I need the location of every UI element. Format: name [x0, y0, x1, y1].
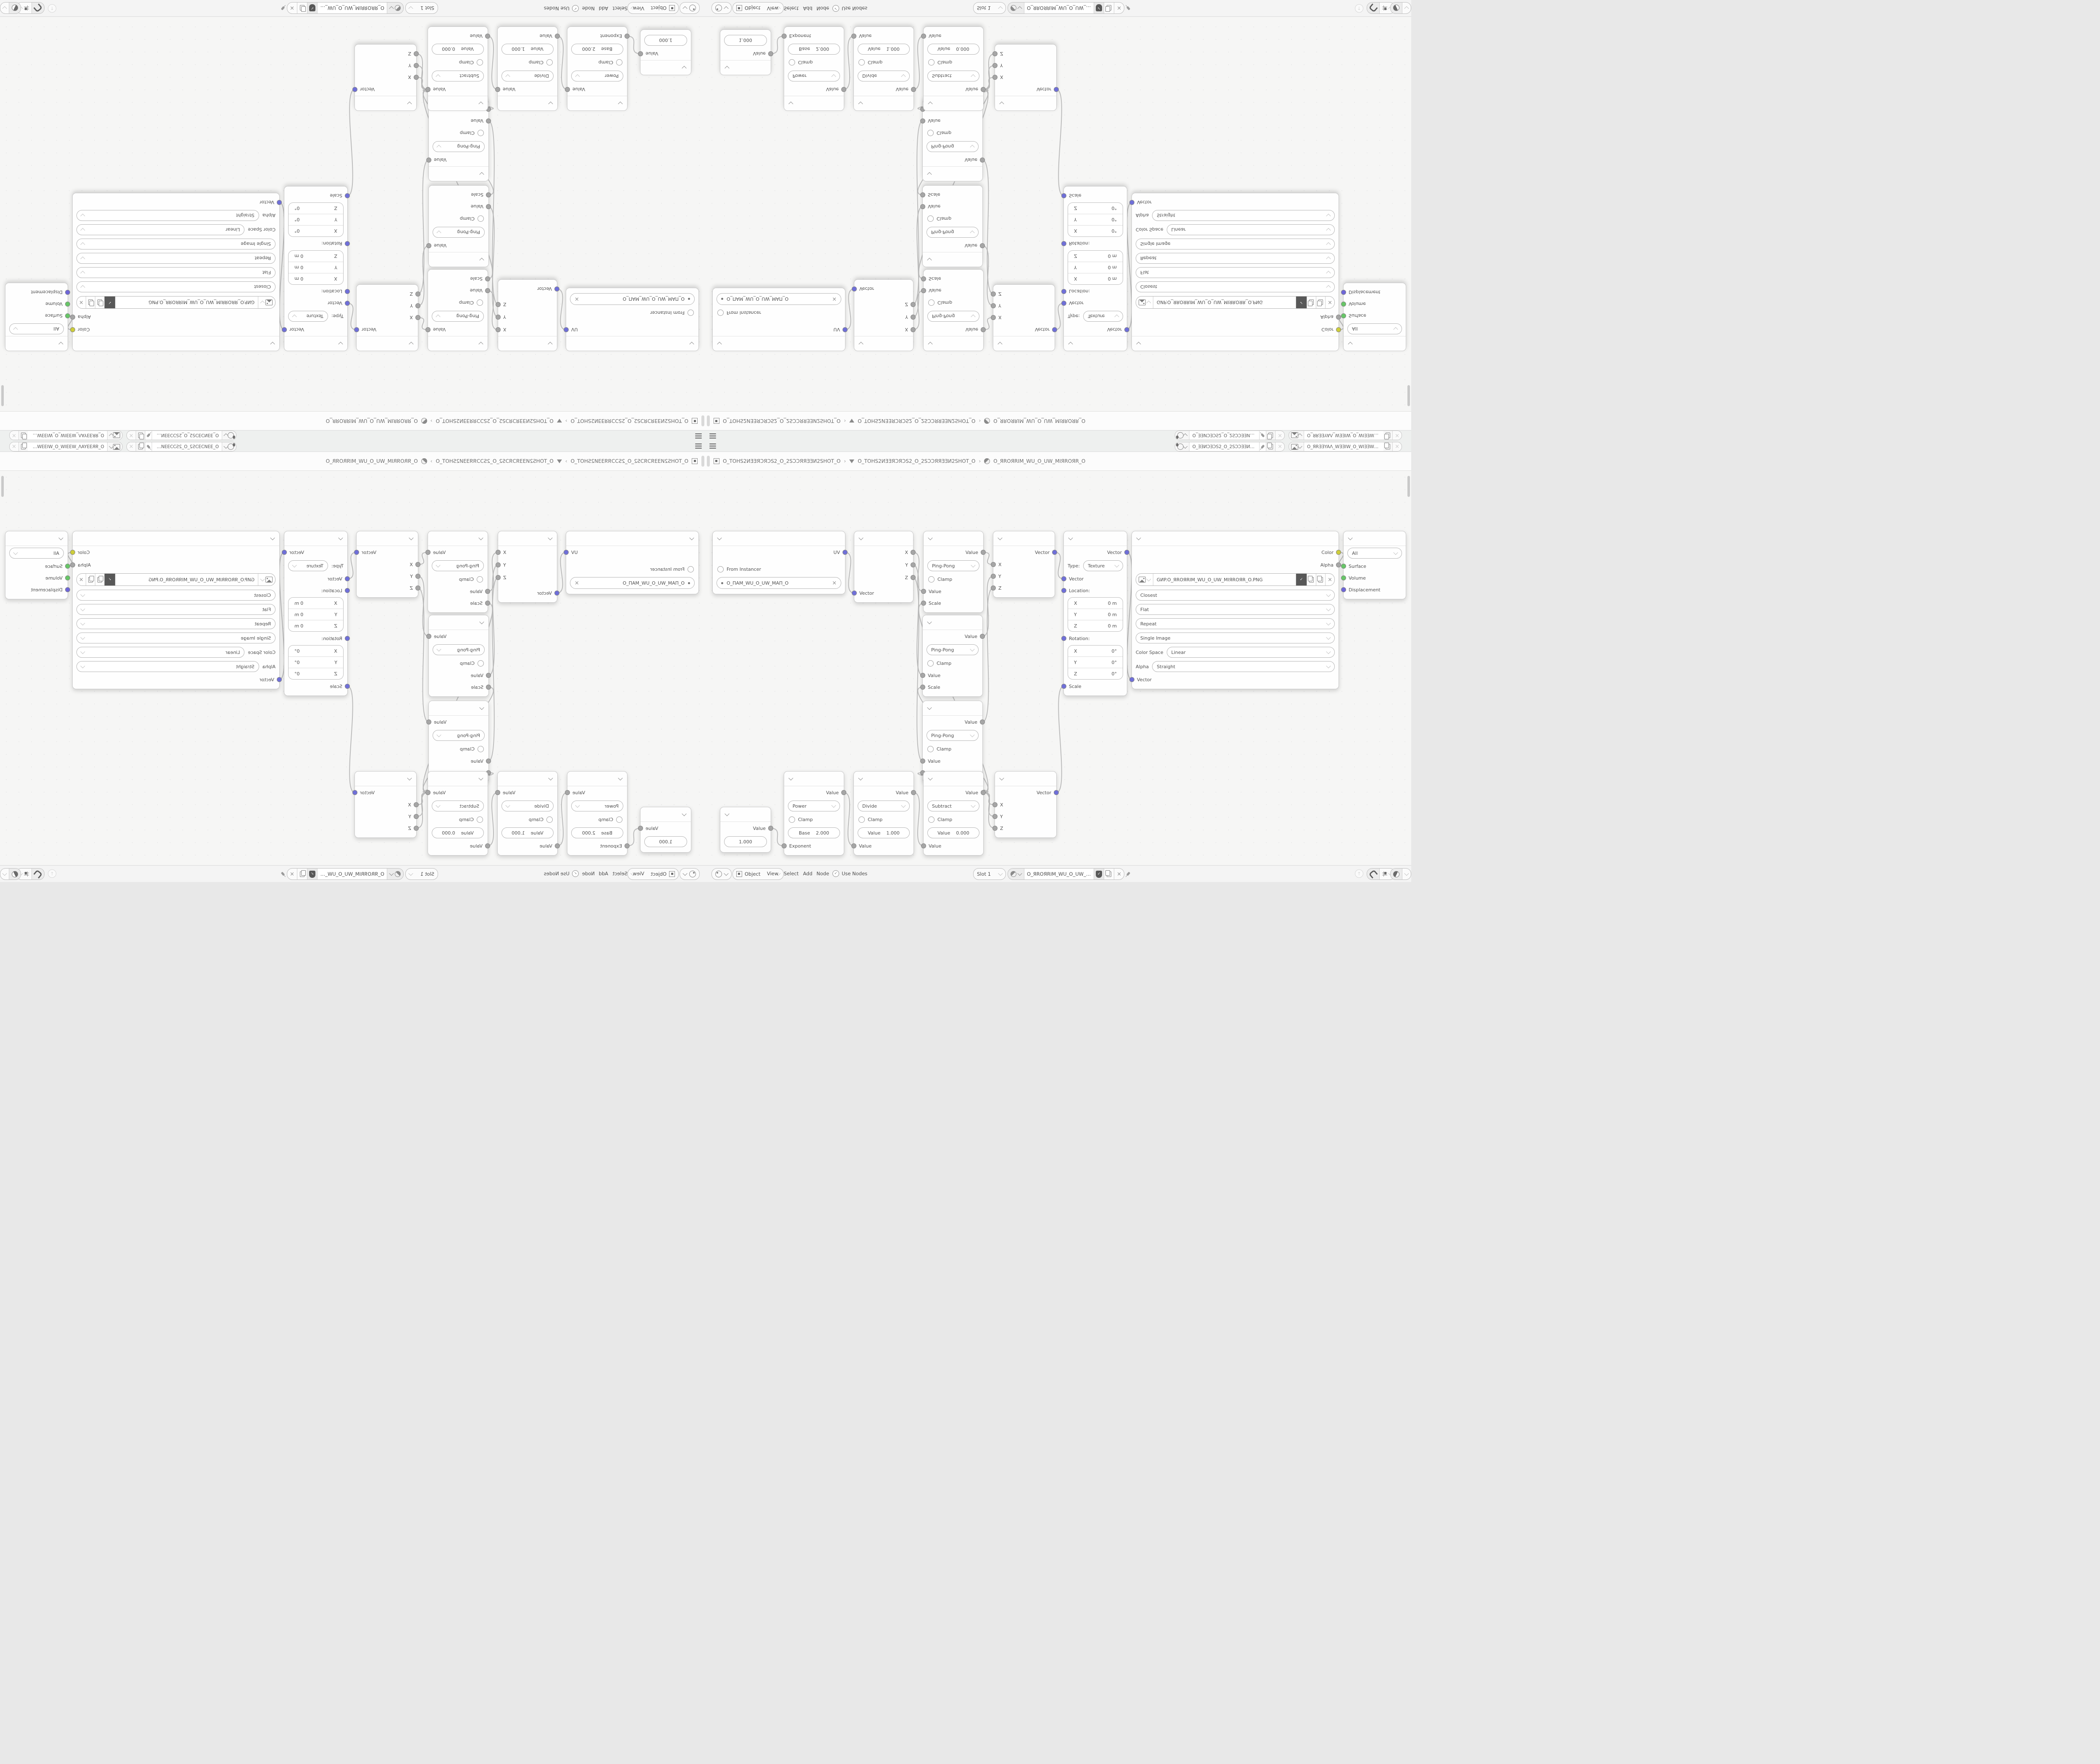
close-icon[interactable]: × — [1276, 431, 1284, 440]
z-socket[interactable] — [991, 585, 996, 591]
single-image-dropdown[interactable]: Single Image — [1136, 239, 1335, 249]
node-header[interactable] — [567, 96, 627, 110]
scale-socket[interactable] — [345, 684, 350, 689]
value-socket[interactable] — [426, 243, 431, 248]
material-sphere-icon[interactable] — [1008, 869, 1024, 879]
uv-map-selector[interactable]: O_ПAM_WU_O_UW_MAП_O× — [717, 577, 841, 589]
clamp-checkbox[interactable] — [477, 816, 483, 823]
close-icon[interactable]: × — [10, 442, 18, 451]
clamp-checkbox[interactable] — [477, 300, 483, 306]
value-socket[interactable] — [426, 719, 431, 724]
flat-dropdown[interactable]: Flat — [76, 604, 276, 615]
node-header[interactable] — [429, 615, 488, 630]
node-header[interactable] — [854, 96, 913, 110]
x-socket[interactable] — [496, 327, 501, 332]
collapse-chevron-icon[interactable] — [270, 342, 275, 346]
scale-socket[interactable] — [486, 685, 491, 690]
math-power-node[interactable]: ValuePowerClampBase2.000Exponent — [567, 26, 627, 111]
image-datablock-selector[interactable]: GИP.O_ЯROЯRIM_WU_O_UW_MIЯROЯR_O.PNG✓× — [76, 573, 276, 586]
math-pingpong-3-node[interactable]: ValuePing-PongClampValueScale — [922, 701, 983, 782]
value-socket[interactable] — [425, 87, 430, 92]
copy-icon[interactable] — [1383, 442, 1393, 451]
breadcrumb-data[interactable]: O_TOHS2ИƎƎЯƆЯƆS2_O_2SƆƆЯЯƎƎИ2SHOT_O — [858, 418, 975, 424]
area-corner-handle[interactable] — [707, 456, 710, 467]
x-socket[interactable] — [911, 327, 916, 332]
y-socket[interactable] — [496, 562, 501, 567]
clamp-checkbox[interactable] — [858, 60, 865, 66]
y-socket[interactable] — [496, 315, 501, 320]
image-icon[interactable] — [258, 297, 275, 308]
image-icon[interactable] — [258, 574, 275, 585]
collapse-chevron-icon[interactable] — [409, 535, 413, 540]
subtract-dropdown[interactable]: Subtract — [927, 801, 979, 811]
ping-pong-dropdown[interactable]: Ping-Pong — [433, 644, 485, 655]
menu-select[interactable]: Select — [613, 868, 627, 879]
collapse-chevron-icon[interactable] — [1348, 535, 1352, 540]
y-socket[interactable] — [414, 814, 419, 819]
divide-dropdown[interactable]: Divide — [501, 71, 554, 81]
scrollbar[interactable] — [1, 385, 4, 406]
collapse-chevron-icon[interactable] — [927, 705, 932, 710]
uv-socket[interactable] — [843, 327, 848, 332]
power-dropdown[interactable]: Power — [571, 71, 623, 81]
node-header[interactable] — [429, 252, 488, 267]
z-socket[interactable] — [414, 51, 419, 56]
viewer-datablock-selector[interactable]: O_ЯRƎƎYAΛ_WƎƎIW_O_WIƎƎW_ΛAYƎƎRЯ_O × — [9, 442, 123, 451]
flat-dropdown[interactable]: Flat — [1136, 604, 1335, 615]
x-socket[interactable] — [496, 550, 501, 555]
node-header[interactable] — [995, 772, 1056, 786]
node-header[interactable] — [498, 96, 557, 110]
value-field[interactable]: Value0.000 — [927, 827, 979, 838]
value-socket[interactable] — [638, 826, 643, 831]
axis-field[interactable]: Y0 m — [1068, 609, 1123, 620]
location--socket[interactable] — [345, 588, 350, 593]
value-node[interactable]: Value1.000 — [640, 807, 691, 853]
value-socket[interactable] — [920, 204, 925, 209]
value-socket[interactable] — [486, 673, 491, 678]
collapse-chevron-icon[interactable] — [999, 776, 1004, 780]
value-socket[interactable] — [841, 790, 846, 795]
uv-map-node[interactable]: UVFrom InstancerO_ПAM_WU_O_UW_MAП_O× — [566, 288, 699, 351]
collapse-chevron-icon[interactable] — [1068, 342, 1073, 346]
value-socket[interactable] — [485, 288, 490, 293]
node-header[interactable] — [784, 96, 844, 110]
unpack-icon[interactable] — [1316, 574, 1325, 585]
breadcrumb-material[interactable]: O_ЯROЯRIM_WU_O_UW_MIЯROЯR_O — [326, 418, 418, 424]
value-socket[interactable] — [920, 118, 925, 123]
collapse-chevron-icon[interactable] — [858, 102, 863, 106]
copy-icon[interactable] — [18, 442, 28, 451]
axis-field[interactable]: Y0 m — [289, 609, 343, 620]
subtract-dropdown[interactable]: Subtract — [432, 801, 484, 811]
axis-field[interactable]: X0 m — [1068, 273, 1123, 284]
x-socket[interactable] — [991, 562, 996, 567]
x-socket[interactable] — [991, 315, 996, 320]
breadcrumb-material[interactable]: O_ЯROЯRIM_WU_O_UW_MIЯROЯR_O — [326, 458, 418, 464]
divide-dropdown[interactable]: Divide — [501, 801, 554, 811]
location--socket[interactable] — [1061, 588, 1066, 593]
node-editor-canvas[interactable]: UVFrom InstancerO_ПAM_WU_O_UW_MAП_O×XYZV… — [706, 16, 1411, 411]
node-header[interactable] — [640, 807, 691, 822]
image-icon[interactable] — [1136, 574, 1153, 585]
node-header[interactable] — [713, 336, 845, 351]
copy-icon[interactable] — [1307, 297, 1316, 308]
mapping-node[interactable]: VectorType:TextureVectorLocation:X0 mY0 … — [1063, 186, 1127, 351]
scene-icon[interactable] — [222, 431, 236, 440]
node-header[interactable] — [355, 772, 416, 786]
close-icon[interactable]: × — [575, 580, 579, 586]
separate-xyz-node[interactable]: XYZVector — [498, 531, 557, 603]
color-socket[interactable] — [1336, 550, 1341, 555]
collapse-chevron-icon[interactable] — [270, 535, 275, 540]
linear-dropdown[interactable]: Linear — [76, 224, 244, 235]
math-subtract-node[interactable]: ValueSubtractClampValue0.000Value — [923, 771, 984, 856]
value-socket[interactable] — [555, 34, 560, 39]
math-subtract-node[interactable]: ValueSubtractClampValue0.000Value — [428, 771, 488, 856]
fake-user-shield-icon[interactable]: ✓ — [105, 574, 115, 585]
axis-field[interactable]: Z0 m — [289, 251, 343, 262]
collapse-chevron-icon[interactable] — [548, 342, 552, 346]
use-nodes-toggle[interactable]: ✓ Use Nodes — [544, 3, 579, 14]
node-header[interactable] — [498, 772, 557, 786]
value-socket[interactable] — [486, 759, 491, 764]
breadcrumb-material[interactable]: O_ЯROЯRIM_WU_O_UW_MIЯROЯR_O — [993, 418, 1085, 424]
uv-map-node[interactable]: UVFrom InstancerO_ПAM_WU_O_UW_MAП_O× — [712, 288, 845, 351]
collapse-chevron-icon[interactable] — [618, 776, 622, 780]
material-slot-dropdown[interactable]: Slot 1 — [405, 868, 438, 880]
copy-icon[interactable] — [95, 297, 105, 308]
material-output-node[interactable]: AllSurfaceVolumeDisplacement — [5, 531, 68, 599]
collapse-chevron-icon[interactable] — [928, 102, 932, 106]
math-pingpong-1-node[interactable]: ValuePing-PongClampValueScale — [428, 531, 488, 613]
copy-icon[interactable] — [297, 3, 307, 13]
menu-add[interactable]: Add — [803, 868, 812, 879]
value-socket[interactable] — [980, 157, 985, 163]
rotation--socket[interactable] — [1061, 241, 1066, 246]
image-icon[interactable] — [1136, 297, 1153, 308]
all-dropdown[interactable]: All — [1347, 548, 1402, 559]
y-socket[interactable] — [991, 574, 996, 579]
linear-dropdown[interactable]: Linear — [76, 647, 244, 658]
menu-select[interactable]: Select — [784, 868, 798, 879]
ping-pong-dropdown[interactable]: Ping-Pong — [927, 644, 979, 655]
node-header[interactable] — [923, 615, 982, 630]
viewer-name[interactable]: O_ЯRƎƎYAΛ_WƎƎIW_O_WIƎƎW_ΛAYƎƎRЯ_O — [1304, 444, 1383, 449]
rotation--socket[interactable] — [345, 241, 350, 246]
scale-socket[interactable] — [485, 601, 490, 606]
image-texture-node[interactable]: ColorAlphaGИP.O_ЯROЯRIM_WU_O_UW_MIЯROЯR_… — [1131, 193, 1339, 351]
scene-name[interactable]: O_ƎƎИƆƎƆS2_O_2SƆƆƎƎИ… — [1189, 444, 1259, 449]
node-header[interactable] — [784, 772, 844, 786]
math-pingpong-1-node[interactable]: ValuePing-PongClampValueScale — [923, 531, 984, 613]
value-socket[interactable] — [921, 288, 926, 293]
axis-field[interactable]: Y0 m — [289, 262, 343, 273]
ping-pong-dropdown[interactable]: Ping-Pong — [433, 227, 485, 238]
combine-xyz-top-node[interactable]: VectorXYZ — [993, 531, 1055, 598]
area-corner-handle[interactable] — [701, 456, 704, 467]
value-field[interactable]: Value0.000 — [432, 44, 484, 55]
subtract-dropdown[interactable]: Subtract — [927, 71, 979, 81]
math-pingpong-2-node[interactable]: ValuePing-PongClampValueScale — [922, 185, 983, 267]
close-icon[interactable]: × — [77, 297, 86, 308]
z-socket[interactable] — [415, 585, 420, 591]
close-icon[interactable]: × — [1325, 297, 1334, 308]
copy-icon[interactable] — [1383, 431, 1393, 440]
volume-socket[interactable] — [65, 302, 70, 307]
node-header[interactable] — [995, 96, 1056, 110]
axis-field[interactable]: Y0° — [1068, 214, 1123, 226]
z-socket[interactable] — [911, 302, 916, 307]
repeat-dropdown[interactable]: Repeat — [76, 618, 276, 629]
value-socket[interactable] — [921, 34, 926, 39]
falloff-controls[interactable] — [1390, 2, 1411, 14]
value-field[interactable]: 1.000 — [724, 35, 767, 46]
from-instancer-checkbox[interactable] — [717, 566, 724, 572]
editor-type-button[interactable] — [711, 2, 732, 14]
node-header[interactable] — [355, 96, 416, 110]
value-socket[interactable] — [920, 673, 925, 678]
clamp-checkbox[interactable] — [546, 60, 553, 66]
viewer-datablock-selector[interactable]: O_ЯRƎƎYAΛ_WƎƎIW_O_WIƎƎW_ΛAYƎƎRЯ_O × — [1289, 442, 1402, 451]
menu-node[interactable]: Node — [582, 3, 595, 14]
collapse-chevron-icon[interactable] — [997, 342, 1002, 346]
displacement-socket[interactable] — [65, 290, 70, 295]
vector-xyz-fields[interactable]: X0°Y0°Z0° — [1068, 645, 1123, 680]
vector-socket[interactable] — [277, 677, 282, 682]
image-icon[interactable] — [1289, 442, 1304, 451]
axis-field[interactable]: Z0 m — [1068, 251, 1123, 262]
scene-icon[interactable] — [1175, 431, 1189, 440]
vector-socket[interactable] — [1124, 327, 1129, 332]
vector-socket[interactable] — [282, 550, 287, 555]
node-header[interactable] — [428, 772, 488, 786]
image-datablock-selector[interactable]: GИP.O_ЯROЯRIM_WU_O_UW_MIЯROЯR_O.PNG✓× — [1136, 296, 1335, 309]
node-header[interactable] — [429, 166, 488, 181]
surface-socket[interactable] — [65, 313, 70, 318]
combine-xyz-bottom-node[interactable]: VectorXYZ — [995, 44, 1057, 111]
node-header[interactable] — [5, 336, 68, 351]
material-slot-dropdown[interactable]: Slot 1 — [973, 868, 1006, 880]
mapping-node[interactable]: VectorType:TextureVectorLocation:X0 mY0 … — [1063, 531, 1127, 696]
scrollbar[interactable] — [1407, 476, 1410, 497]
divide-dropdown[interactable]: Divide — [858, 71, 910, 81]
from-instancer-checkbox[interactable] — [717, 310, 724, 316]
copy-icon[interactable] — [1266, 431, 1276, 440]
value-socket[interactable] — [980, 719, 985, 724]
exponent-socket[interactable] — [625, 843, 630, 848]
texture-dropdown[interactable]: Texture — [1083, 311, 1123, 322]
fake-user-shield-icon[interactable]: ✓ — [307, 869, 318, 879]
value-socket[interactable] — [851, 34, 856, 39]
node-header[interactable] — [5, 531, 68, 546]
ping-pong-dropdown[interactable]: Ping-Pong — [432, 311, 484, 322]
value-socket[interactable] — [425, 327, 430, 332]
value-socket[interactable] — [981, 790, 986, 795]
x-socket[interactable] — [414, 75, 419, 80]
separate-xyz-node[interactable]: XYZVector — [854, 531, 913, 603]
breadcrumb-data[interactable]: O_TOHS2ИƎƎЯƆЯƆS2_O_2SƆƆЯЯƎƎИ2SHOT_O — [858, 458, 975, 464]
value-socket[interactable] — [981, 87, 986, 92]
math-pingpong-3-node[interactable]: ValuePing-PongClampValueScale — [428, 100, 489, 181]
collapse-chevron-icon[interactable] — [999, 102, 1004, 106]
vector-xyz-fields[interactable]: X0 mY0 mZ0 m — [288, 597, 344, 632]
vector-xyz-fields[interactable]: X0°Y0°Z0° — [288, 645, 344, 680]
x-socket[interactable] — [911, 550, 916, 555]
node-header[interactable] — [713, 531, 845, 546]
value-field[interactable]: 1.000 — [644, 836, 687, 847]
up-arrow-button[interactable]: ↑ — [1355, 868, 1363, 879]
node-header[interactable] — [498, 336, 557, 351]
combine-xyz-top-node[interactable]: VectorXYZ — [356, 531, 418, 598]
texture-dropdown[interactable]: Texture — [288, 311, 328, 322]
material-output-node[interactable]: AllSurfaceVolumeDisplacement — [1343, 283, 1406, 351]
axis-field[interactable]: Z0 m — [1068, 620, 1123, 631]
value-socket[interactable] — [920, 759, 925, 764]
axis-field[interactable]: Z0 m — [289, 620, 343, 631]
close-icon[interactable]: × — [10, 431, 18, 440]
value-socket[interactable] — [565, 87, 570, 92]
menu-node[interactable]: Node — [582, 868, 595, 879]
node-header[interactable] — [923, 701, 982, 716]
value-socket[interactable] — [638, 51, 643, 56]
menu-hamburger-icon[interactable] — [709, 433, 716, 438]
y-socket[interactable] — [992, 63, 997, 68]
collapse-chevron-icon[interactable] — [927, 619, 932, 624]
ping-pong-dropdown[interactable]: Ping-Pong — [927, 730, 979, 741]
material-name-field[interactable]: O_ЯROЯRIM_WU_O_UW_MIЯROЯR_O — [318, 3, 387, 13]
straight-dropdown[interactable]: Straight — [1152, 661, 1335, 672]
fake-user-shield-icon[interactable]: ✓ — [307, 3, 318, 13]
math-pingpong-2-node[interactable]: ValuePing-PongClampValueScale — [428, 185, 489, 267]
vector-socket[interactable] — [354, 550, 359, 555]
falloff-controls[interactable] — [0, 868, 21, 880]
clamp-checkbox[interactable] — [928, 60, 934, 66]
material-name-field[interactable]: O_ЯROЯRIM_WU_O_UW_MIЯROЯR_O — [1024, 3, 1094, 13]
math-subtract-node[interactable]: ValueSubtractClampValue0.000Value — [428, 26, 488, 111]
math-pingpong-1-node[interactable]: ValuePing-PongClampValueScale — [923, 269, 984, 351]
node-header[interactable] — [854, 336, 913, 351]
closest-dropdown[interactable]: Closest — [1136, 281, 1335, 292]
node-header[interactable] — [720, 807, 771, 822]
material-datablock-selector[interactable]: O_ЯROЯRIM_WU_O_UW_MIЯROЯR_O ✓ × — [287, 2, 404, 14]
value-socket[interactable] — [495, 790, 500, 795]
falloff-icon[interactable] — [9, 869, 21, 879]
value-socket[interactable] — [851, 843, 856, 848]
flat-dropdown[interactable]: Flat — [1136, 267, 1335, 278]
scene-icon[interactable] — [222, 442, 236, 451]
uv-map-selector[interactable]: O_ПAM_WU_O_UW_MAП_O× — [570, 577, 695, 589]
falloff-controls[interactable] — [0, 2, 21, 14]
scene-icon[interactable] — [1175, 442, 1189, 451]
collapse-chevron-icon[interactable] — [478, 102, 483, 106]
value-socket[interactable] — [426, 157, 431, 163]
alpha-socket[interactable] — [70, 315, 75, 320]
axis-field[interactable]: Y0° — [289, 214, 343, 226]
image-datablock-selector[interactable]: GИP.O_ЯROЯRIM_WU_O_UW_MIЯROЯR_O.PNG✓× — [76, 296, 276, 309]
node-header[interactable] — [923, 166, 982, 181]
falloff-controls[interactable] — [1390, 868, 1411, 880]
collapse-chevron-icon[interactable] — [338, 342, 343, 346]
vector-socket[interactable] — [852, 286, 857, 291]
menu-add[interactable]: Add — [599, 3, 608, 14]
close-icon[interactable]: × — [1393, 442, 1402, 451]
vector-socket[interactable] — [354, 327, 359, 332]
collapse-chevron-icon[interactable] — [407, 776, 412, 780]
pin-icon[interactable] — [1259, 431, 1266, 440]
repeat-dropdown[interactable]: Repeat — [1136, 618, 1335, 629]
value-socket[interactable] — [426, 634, 431, 639]
collapse-chevron-icon[interactable] — [858, 342, 863, 346]
scene-name[interactable]: O_ƎƎИƆƎƆS2_O_2SƆƆƎƎИ… — [152, 444, 222, 449]
node-editor-canvas[interactable]: UVFrom InstancerO_ПAM_WU_O_UW_MAП_O×XYZV… — [706, 471, 1411, 866]
vector-xyz-fields[interactable]: X0 mY0 mZ0 m — [1068, 250, 1123, 285]
repeat-dropdown[interactable]: Repeat — [76, 253, 276, 264]
mapping-node[interactable]: VectorType:TextureVectorLocation:X0 mY0 … — [284, 531, 348, 696]
value-socket[interactable] — [911, 790, 916, 795]
value-socket[interactable] — [981, 550, 986, 555]
image-icon[interactable] — [107, 431, 122, 440]
node-header[interactable] — [854, 772, 913, 786]
vector-socket[interactable] — [1061, 576, 1066, 581]
node-header[interactable] — [640, 60, 691, 75]
vector-xyz-fields[interactable]: X0°Y0°Z0° — [1068, 202, 1123, 237]
image-icon[interactable] — [1289, 431, 1304, 440]
rotation--socket[interactable] — [345, 636, 350, 641]
vector-socket[interactable] — [1129, 677, 1134, 682]
combine-xyz-bottom-node[interactable]: VectorXYZ — [354, 771, 417, 838]
close-icon[interactable]: × — [1114, 3, 1124, 13]
close-icon[interactable]: × — [127, 442, 136, 451]
collapse-chevron-icon[interactable] — [928, 342, 932, 346]
axis-field[interactable]: Z0° — [289, 668, 343, 679]
copy-icon[interactable] — [297, 869, 307, 879]
uv-map-selector[interactable]: O_ПAM_WU_O_UW_MAП_O× — [570, 293, 695, 305]
all-dropdown[interactable]: All — [9, 548, 64, 559]
math-pingpong-1-node[interactable]: ValuePing-PongClampValueScale — [428, 269, 488, 351]
menu-add[interactable]: Add — [803, 3, 812, 14]
vector-xyz-fields[interactable]: X0 mY0 mZ0 m — [1068, 597, 1123, 632]
collapse-chevron-icon[interactable] — [58, 342, 63, 346]
scale-socket[interactable] — [920, 685, 925, 690]
combine-xyz-bottom-node[interactable]: VectorXYZ — [995, 771, 1057, 838]
node-editor-canvas[interactable]: UVFrom InstancerO_ПAM_WU_O_UW_MAП_O×XYZV… — [0, 471, 706, 866]
image-texture-node[interactable]: ColorAlphaGИP.O_ЯROЯRIM_WU_O_UW_MIЯROЯR_… — [72, 193, 280, 351]
clamp-checkbox[interactable] — [478, 746, 484, 752]
vector-xyz-fields[interactable]: X0 mY0 mZ0 m — [288, 250, 344, 285]
clamp-checkbox[interactable] — [928, 816, 934, 823]
node-header[interactable] — [924, 336, 983, 351]
collapse-chevron-icon[interactable] — [1136, 342, 1141, 346]
copy-icon[interactable] — [136, 442, 145, 451]
separate-xyz-node[interactable]: XYZVector — [854, 279, 913, 351]
collapse-chevron-icon[interactable] — [997, 535, 1002, 540]
collapse-chevron-icon[interactable] — [927, 172, 932, 177]
clamp-checkbox[interactable] — [477, 60, 483, 66]
combine-xyz-top-node[interactable]: VectorXYZ — [356, 284, 418, 351]
texture-dropdown[interactable]: Texture — [288, 560, 328, 571]
node-header[interactable] — [428, 96, 488, 110]
node-header[interactable] — [566, 531, 698, 546]
collapse-chevron-icon[interactable] — [479, 619, 484, 624]
area-corner-handle[interactable] — [701, 415, 704, 426]
math-pingpong-2-node[interactable]: ValuePing-PongClampValueScale — [922, 615, 983, 697]
menu-view[interactable]: View — [633, 3, 644, 14]
node-header[interactable] — [993, 336, 1055, 351]
fake-user-shield-icon[interactable]: ✓ — [1296, 297, 1307, 308]
math-pingpong-3-node[interactable]: ValuePing-PongClampValueScale — [428, 701, 489, 782]
collapse-chevron-icon[interactable] — [689, 535, 694, 540]
